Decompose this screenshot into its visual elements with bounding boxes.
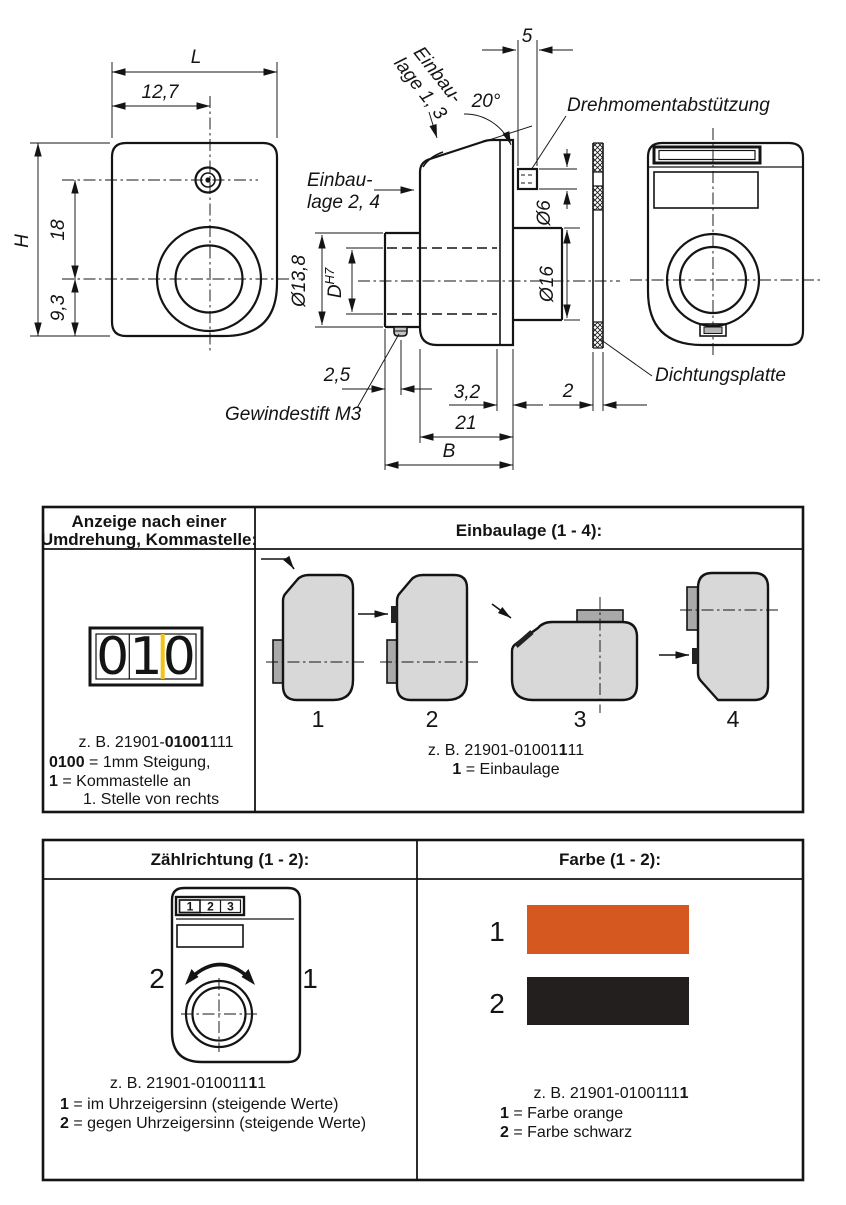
legend-line: 2 = Farbe schwarz [500, 1124, 632, 1141]
face-tab-inner [704, 327, 722, 334]
position-pin [692, 648, 699, 664]
plate-hatch-bottom [593, 322, 603, 348]
position-number: 2 [426, 706, 439, 732]
position-pin [391, 606, 398, 623]
legend-line: 1. Stelle von rechts [83, 791, 219, 808]
mini-counter-digit: 1 [187, 900, 194, 914]
torque-pin [518, 169, 537, 189]
dim-L-label: L [191, 47, 202, 68]
mini-counter-digit: 3 [227, 900, 234, 914]
dim-dia13-8-label: Ø13,8 [289, 255, 310, 308]
dim-dia6-label: Ø6 [534, 200, 555, 227]
legend-line: 0100 = 1mm Steigung, [49, 754, 210, 771]
dim-9-3-label: 9,3 [48, 294, 69, 321]
position-body [698, 573, 768, 700]
dichtungsplatte-label: Dichtungsplatte [655, 365, 786, 386]
dim-20deg-label: 20° [471, 91, 501, 112]
table1-left-header-line1: Anzeige nach einer [72, 512, 227, 531]
counter-digit: 0 [163, 627, 196, 687]
dim-dia16-label: Ø16 [537, 266, 558, 303]
direction-label-cw: 1 [302, 963, 318, 994]
dim-3-2-label: 3,2 [454, 382, 481, 403]
technical-drawing-canvas: L 12,7 H 18 9,3 [0, 0, 846, 1200]
position-number: 1 [312, 706, 325, 732]
legend-line: 1 = Einbaulage [452, 761, 559, 778]
dim-2-5-label: 2,5 [323, 365, 351, 386]
face-view [630, 128, 822, 358]
position-body [283, 575, 353, 700]
legend-line: 1 = Kommastelle an [49, 773, 191, 790]
counter-digit: 0 [96, 627, 129, 687]
mini-counter-digit: 2 [207, 900, 214, 914]
plate-hatch-top [593, 143, 603, 172]
legend-line: 1 = Farbe orange [500, 1105, 623, 1122]
example-number: z. B. 21901-01001111 [428, 742, 584, 759]
dim-12-7-label: 12,7 [142, 82, 180, 103]
table2-left-header: Zählrichtung (1 - 2): [151, 850, 310, 869]
position-tab [687, 587, 698, 630]
gewindestift-label: Gewindestift M3 [225, 404, 362, 425]
dim-21-label: 21 [454, 413, 476, 434]
counter-digit: 1 [129, 627, 162, 687]
legend-line: 1 = im Uhrzeigersinn (steigende Werte) [60, 1096, 339, 1113]
table2-right-header: Farbe (1 - 2): [559, 850, 661, 869]
mini-counter: 1 2 3 [176, 897, 244, 915]
einbaulage-2-4-line1: Einbau- [307, 170, 373, 191]
catalog-drawing-page: L 12,7 H 18 9,3 [0, 0, 846, 1200]
position-number: 4 [727, 706, 740, 732]
dim-2-label: 2 [562, 381, 574, 402]
color-swatch-black [527, 977, 689, 1025]
dim-H-label: H [12, 234, 33, 248]
swatch-number: 2 [489, 988, 505, 1019]
swatch-number: 1 [489, 916, 505, 947]
plate-hatch-mid [593, 186, 603, 210]
position-body [397, 575, 467, 700]
example-number: z. B. 21901-01001111 [110, 1075, 266, 1092]
drehmoment-label: Drehmomentabstützung [567, 95, 770, 116]
position-number: 3 [574, 706, 587, 732]
face-view-body [648, 143, 803, 345]
example-number: z. B. 21901-01001111 [533, 1085, 688, 1102]
dim-18-label: 18 [48, 219, 69, 241]
direction-label-ccw: 2 [149, 963, 165, 994]
legend-line: 2 = gegen Uhrzeigersinn (steigende Werte… [60, 1115, 366, 1132]
color-swatch-orange [527, 905, 689, 954]
table1-right-header: Einbaulage (1 - 4): [456, 521, 602, 540]
example-number: z. B. 21901-01001111 [78, 734, 233, 751]
dim-5-label: 5 [522, 26, 533, 47]
set-screw-dot [205, 177, 210, 182]
counter-display: 0 1 0 [90, 627, 202, 687]
table1-left-header-line2: Umdrehung, Kommastelle: [41, 530, 257, 549]
dim-B-label: B [443, 441, 456, 462]
einbaulage-2-4-line2: lage 2, 4 [307, 192, 380, 213]
